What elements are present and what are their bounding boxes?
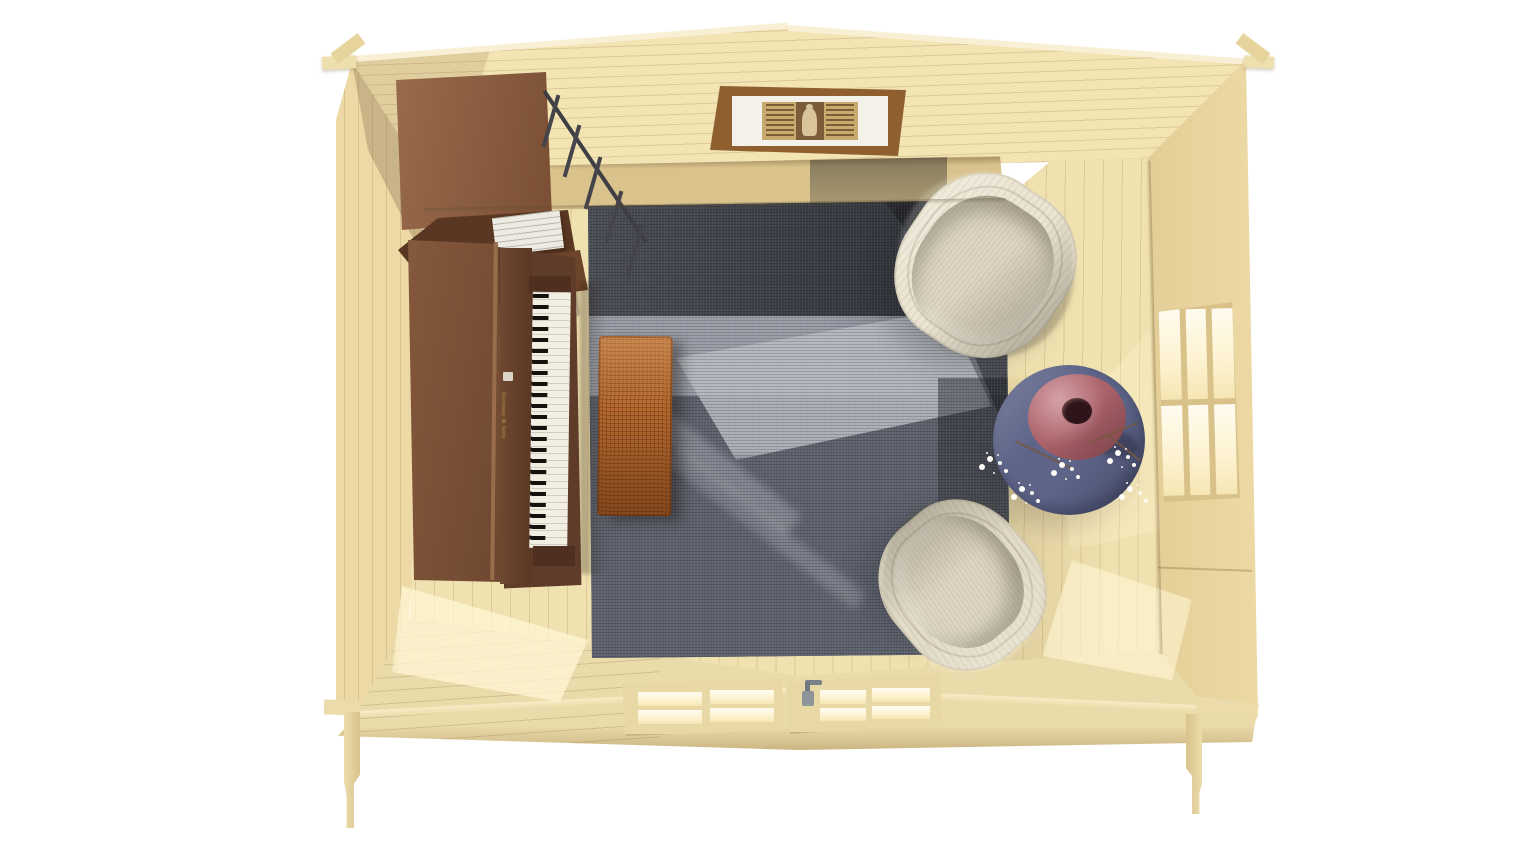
- picture-figure-head: [806, 104, 813, 110]
- rattan-bench: [597, 336, 673, 517]
- door-pane: [820, 708, 866, 721]
- vase-hole: [1062, 398, 1092, 424]
- corner-fascia-bottom-right: [1186, 714, 1202, 814]
- piano-black-keys: [529, 294, 549, 546]
- piano-brand-text: Steinway & Sons: [500, 392, 506, 406]
- window-pane: [1212, 308, 1235, 399]
- blossom-cluster: [1059, 462, 1065, 468]
- window-pane: [1214, 404, 1237, 495]
- door-pane: [710, 708, 774, 722]
- picture-text-right: [826, 104, 854, 138]
- render-stage: Steinway & Sons: [0, 0, 1536, 864]
- blossom-cluster: [1127, 486, 1133, 492]
- door-pane: [638, 710, 702, 724]
- door-pane: [820, 690, 866, 704]
- blossom-cluster: [1115, 450, 1121, 456]
- picture-figure-panel: [796, 102, 824, 140]
- glazed-door-left: [620, 676, 786, 736]
- side-table-group: [975, 350, 1195, 530]
- piano-brand-logo: Steinway & Sons: [504, 388, 518, 444]
- picture-art: [762, 102, 858, 140]
- picture-figure: [802, 108, 817, 136]
- blossom-cluster: [1019, 486, 1025, 492]
- shelf-post: [626, 224, 645, 277]
- blossom-cluster: [987, 456, 993, 462]
- piano-cheek-bottom: [533, 546, 575, 566]
- picture-text-left: [766, 104, 794, 138]
- door-handle: [800, 678, 826, 710]
- piano-keyboard: [529, 292, 571, 549]
- door-handle-plate: [802, 691, 814, 706]
- door-pane: [710, 690, 774, 704]
- door-pane: [638, 692, 702, 706]
- corner-fascia-bottom-left: [344, 712, 360, 828]
- door-pane: [872, 706, 930, 719]
- door-pane: [872, 688, 930, 702]
- upright-piano: Steinway & Sons: [400, 230, 615, 600]
- piano-lock-label: [503, 372, 513, 381]
